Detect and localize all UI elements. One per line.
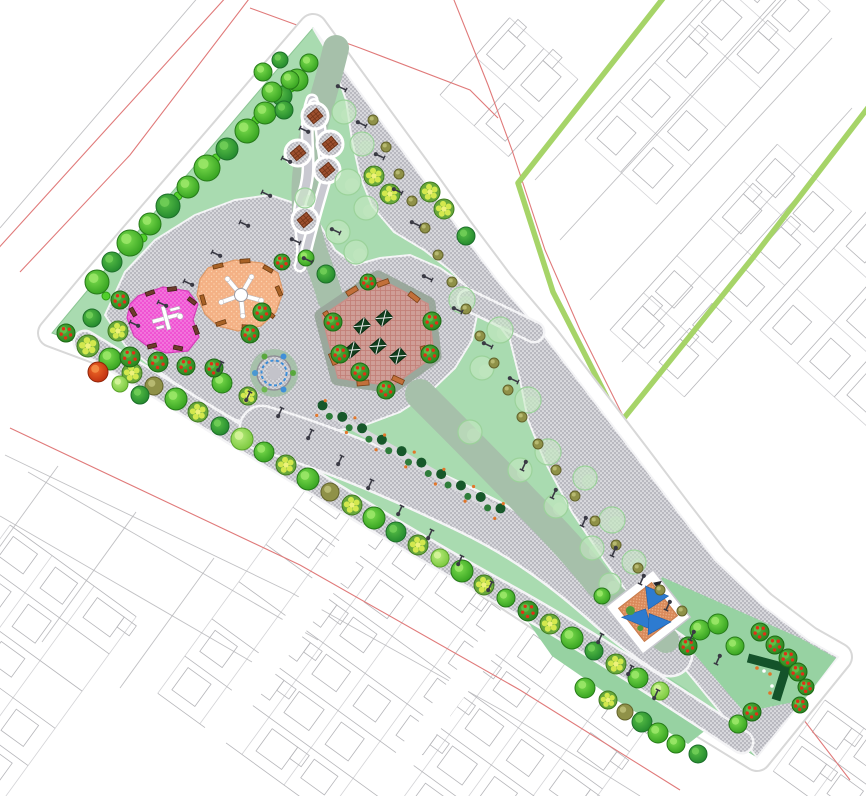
fruit-dot	[750, 715, 753, 718]
tree-o	[570, 491, 580, 501]
fruit-dot	[366, 285, 369, 288]
tree-h	[599, 507, 625, 533]
pergola-planting	[397, 446, 407, 456]
fruit-dot	[753, 631, 756, 634]
fruit-dot	[59, 332, 62, 335]
fruit-dot	[389, 390, 392, 393]
fruit-dot	[362, 281, 365, 284]
tree-f	[518, 601, 538, 621]
fruit-dot	[768, 644, 771, 647]
tree-s	[599, 691, 617, 709]
fruit-dot	[745, 711, 748, 714]
tree-c	[451, 560, 473, 582]
fruit-dot	[756, 626, 759, 629]
tree-o	[633, 563, 643, 573]
tree-d	[275, 101, 293, 119]
tree-h	[458, 420, 482, 444]
fruit-dot	[212, 371, 215, 374]
fruit-dot	[260, 315, 263, 318]
fruit-dot	[335, 317, 338, 320]
rose-dot	[345, 431, 348, 434]
fruit-dot	[798, 708, 801, 711]
fruit-dot	[69, 333, 72, 336]
fruit-dot	[791, 671, 794, 674]
tree-f	[324, 313, 342, 331]
fruit-dot	[207, 367, 210, 370]
fruit-dot	[791, 658, 794, 661]
rose-dot	[493, 517, 496, 520]
tree-h	[487, 317, 513, 343]
fruit-dot	[428, 315, 431, 318]
fruit-dot	[521, 611, 524, 614]
fruit-dot	[802, 682, 805, 685]
tree-o	[590, 516, 600, 526]
tree-f	[331, 345, 349, 363]
fruit-dot	[684, 640, 687, 643]
fruit-dot	[388, 385, 391, 388]
tree-o	[447, 277, 457, 287]
tree-s	[276, 455, 296, 475]
tree-o	[677, 606, 687, 616]
rose-dot	[315, 414, 318, 417]
tree-c	[363, 507, 385, 529]
fruit-dot	[333, 353, 336, 356]
tree-f	[421, 345, 439, 363]
fruit-dot	[794, 666, 797, 669]
tree-c	[194, 155, 220, 181]
fruit-dot	[686, 649, 689, 652]
tree-o	[368, 115, 378, 125]
tree-s	[408, 535, 428, 555]
tree-y	[231, 428, 253, 450]
tree-f	[148, 352, 168, 372]
fruit-dot	[123, 357, 126, 360]
fruit-dot	[364, 277, 367, 280]
hedge-dot	[768, 672, 772, 676]
bench	[167, 286, 176, 291]
fruit-dot	[430, 324, 433, 327]
rose-dot	[353, 416, 356, 419]
planting-tuft	[252, 370, 258, 376]
tree-f	[377, 381, 395, 399]
tree-c	[708, 614, 728, 634]
tree-c	[177, 176, 199, 198]
tree-c	[297, 468, 319, 490]
fruit-dot	[276, 261, 279, 264]
pergola-planting	[337, 412, 347, 422]
fruit-dot	[530, 605, 533, 608]
fruit-dot	[369, 277, 372, 280]
planting-tuft	[290, 370, 296, 376]
tree-f	[792, 697, 808, 713]
fruit-dot	[762, 627, 765, 630]
fruit-dot	[796, 675, 799, 678]
tree-h	[344, 240, 368, 264]
fruit-dot	[794, 704, 797, 707]
tree-o	[381, 142, 391, 152]
fruit-dot	[777, 640, 780, 643]
tree-o	[321, 483, 339, 501]
tree-o	[394, 169, 404, 179]
tree-f	[253, 303, 271, 321]
planting-tuft	[262, 354, 268, 360]
pergola-planting	[416, 458, 426, 468]
fruit-dot	[801, 700, 804, 703]
tree-h	[354, 196, 378, 220]
tree-c	[254, 63, 272, 81]
tree-c	[561, 627, 583, 649]
fruit-dot	[370, 282, 373, 285]
fruit-dot	[356, 366, 359, 369]
fruit-dot	[284, 262, 287, 265]
fruit-dot	[807, 682, 810, 685]
rose-dot	[324, 399, 327, 402]
fruit-dot	[342, 349, 345, 352]
fruit-dot	[188, 361, 191, 364]
tree-o	[433, 250, 443, 260]
fruit-dot	[179, 365, 182, 368]
fruit-dot	[802, 705, 805, 708]
fruit-dot	[331, 325, 334, 328]
fruit-dot	[748, 706, 751, 709]
rose-dot	[434, 482, 437, 485]
fruit-dot	[800, 686, 803, 689]
tree-o	[489, 358, 499, 368]
tree-f	[241, 325, 259, 343]
tree-c	[628, 668, 648, 688]
fruit-dot	[384, 393, 387, 396]
tree-c	[85, 270, 109, 294]
tree-c	[281, 71, 299, 89]
fruit-dot	[379, 389, 382, 392]
tree-c	[117, 230, 143, 256]
tree-d	[211, 417, 229, 435]
tree-h	[295, 188, 315, 208]
fruit-dot	[435, 321, 438, 324]
fruit-dot	[801, 672, 804, 675]
hedge-dot	[762, 669, 766, 673]
fruit-dot	[253, 334, 256, 337]
pergola-planting	[445, 481, 452, 488]
tree-s	[420, 182, 440, 202]
fruit-dot	[64, 336, 67, 339]
site-plan-canvas	[0, 0, 866, 796]
tree-c	[235, 119, 259, 143]
pergola-planting	[464, 493, 471, 500]
tree-c	[262, 82, 282, 102]
fruit-dot	[800, 667, 803, 670]
rose-dot	[502, 502, 505, 505]
fruit-dot	[804, 690, 807, 693]
tree-c	[594, 588, 610, 604]
fruit-dot	[523, 605, 526, 608]
fruit-dot	[283, 257, 286, 260]
fruit-dot	[763, 632, 766, 635]
tree-s	[364, 166, 384, 186]
pergola-planting	[326, 413, 333, 420]
rose-dot	[472, 485, 475, 488]
tree-s	[380, 184, 400, 204]
fruit-dot	[784, 652, 787, 655]
tree-s	[434, 199, 454, 219]
fruit-dot	[362, 367, 365, 370]
pergola-planting	[405, 459, 412, 466]
tree-f	[351, 363, 369, 381]
pergola-planting	[456, 481, 466, 491]
tree-c	[729, 715, 747, 733]
fruit-dot	[338, 357, 341, 360]
tree-c	[667, 735, 685, 753]
tree-h	[350, 132, 374, 156]
rose-dot	[442, 468, 445, 471]
fruit-dot	[153, 356, 156, 359]
tree-h	[335, 169, 361, 195]
fruit-dot	[278, 257, 281, 260]
water-feature	[250, 349, 298, 397]
fruit-dot	[778, 645, 781, 648]
tree-d	[272, 52, 288, 68]
fruit-dot	[382, 384, 385, 387]
fruit-dot	[423, 353, 426, 356]
fruit-dot	[755, 712, 758, 715]
fruit-dot	[681, 645, 684, 648]
fruit-dot	[252, 329, 255, 332]
fruit-dot	[116, 294, 119, 297]
fruit-dot	[123, 300, 126, 303]
tree-o	[475, 331, 485, 341]
tree-f	[423, 312, 441, 330]
fruit-dot	[280, 265, 283, 268]
tree-c	[300, 54, 318, 72]
tree-s	[606, 654, 626, 674]
hedge-dot	[755, 666, 759, 670]
fruit-dot	[132, 351, 135, 354]
rose-dot	[463, 500, 466, 503]
fruit-dot	[160, 356, 163, 359]
tree-d	[457, 227, 475, 245]
fruit-dot	[363, 372, 366, 375]
fruit-dot	[68, 328, 71, 331]
tree-o	[420, 223, 430, 233]
tree-o	[533, 439, 543, 449]
fruit-dot	[773, 648, 776, 651]
planting-tuft	[281, 354, 287, 360]
fruit-dot	[425, 320, 428, 323]
tree-h	[544, 494, 568, 518]
fruit-dot	[246, 328, 249, 331]
fruit-dot	[62, 327, 65, 330]
fruit-dot	[433, 354, 436, 357]
fruit-dot	[353, 371, 356, 374]
tree-c	[254, 102, 276, 124]
tree-o	[617, 704, 633, 720]
tree-y	[112, 376, 128, 392]
fruit-dot	[189, 366, 192, 369]
fruit-dot	[786, 661, 789, 664]
fruit-dot	[133, 357, 136, 360]
fruit-dot	[781, 657, 784, 660]
fruit-dot	[161, 362, 164, 365]
fruit-dot	[248, 337, 251, 340]
fruit-dot	[691, 646, 694, 649]
tree-f	[274, 254, 290, 270]
tree-c	[497, 589, 515, 607]
fruit-dot	[255, 311, 258, 314]
water-feature-center	[267, 366, 281, 380]
tree-h	[332, 100, 356, 124]
tree-o	[503, 385, 513, 395]
fruit-dot	[122, 295, 125, 298]
tree-o	[655, 585, 665, 595]
rose-dot	[383, 433, 386, 436]
fruit-dot	[771, 639, 774, 642]
tree-d	[131, 386, 149, 404]
rose-dot	[404, 465, 407, 468]
fruit-dot	[754, 707, 757, 710]
pergola-planting	[365, 436, 372, 443]
tree-f	[751, 623, 769, 641]
fruit-dot	[184, 369, 187, 372]
pergola-planting	[385, 447, 392, 454]
rose-dot	[374, 448, 377, 451]
pergola-planting	[346, 424, 353, 431]
tree-c	[575, 678, 595, 698]
tree-o	[551, 465, 561, 475]
fruit-dot	[258, 306, 261, 309]
fruit-dot	[526, 615, 529, 618]
fruit-dot	[118, 303, 121, 306]
tree-d	[156, 194, 180, 218]
tree-o	[517, 412, 527, 422]
tree-t	[102, 292, 110, 300]
tree-f	[743, 703, 761, 721]
fruit-dot	[432, 349, 435, 352]
rose-dot	[413, 451, 416, 454]
fruit-dot	[796, 700, 799, 703]
hedge-dot	[768, 691, 772, 695]
tree-c	[726, 637, 744, 655]
fruit-dot	[329, 316, 332, 319]
fruit-dot	[210, 362, 213, 365]
tree-d	[689, 745, 707, 763]
tree-f	[120, 347, 140, 367]
fruit-dot	[265, 312, 268, 315]
tree-s	[188, 402, 208, 422]
tree-s	[108, 321, 128, 341]
tree-c	[139, 213, 161, 235]
tree-d	[585, 642, 603, 660]
fruit-dot	[434, 316, 437, 319]
fruit-dot	[358, 375, 361, 378]
tree-y	[431, 549, 449, 567]
tree-f	[111, 291, 129, 309]
landscape-masterplan-drawing	[0, 0, 866, 796]
tree-d	[386, 522, 406, 542]
tree-c	[648, 723, 668, 743]
planting-tuft	[281, 386, 287, 392]
hedge-dot	[770, 684, 774, 688]
tree-h	[573, 466, 597, 490]
fruit-dot	[151, 362, 154, 365]
pergola-planting	[484, 504, 491, 511]
tree-f	[177, 357, 195, 375]
planting-tuft	[262, 386, 268, 392]
fruit-dot	[343, 354, 346, 357]
fruit-dot	[531, 611, 534, 614]
fruit-dot	[182, 360, 185, 363]
fruit-dot	[336, 322, 339, 325]
tree-d	[216, 138, 238, 160]
fruit-dot	[790, 653, 793, 656]
fruit-dot	[125, 351, 128, 354]
tree-h	[580, 536, 604, 560]
tree-o	[407, 196, 417, 206]
tree-f	[798, 679, 814, 695]
tree-r	[88, 362, 108, 382]
tree-d	[102, 252, 122, 272]
pergola-planting	[425, 470, 432, 477]
tree-c	[254, 442, 274, 462]
tree-f	[789, 663, 807, 681]
fruit-dot	[758, 635, 761, 638]
tree-f	[57, 324, 75, 342]
fruit-dot	[264, 307, 267, 310]
tree-f	[360, 274, 376, 290]
tree-s	[540, 614, 560, 634]
pergola-planting	[357, 423, 367, 433]
fruit-dot	[428, 357, 431, 360]
fruit-dot	[808, 687, 811, 690]
tree-c	[165, 388, 187, 410]
tree-s	[342, 495, 362, 515]
bench	[240, 259, 250, 264]
fruit-dot	[243, 333, 246, 336]
fruit-dot	[113, 299, 116, 302]
fruit-dot	[426, 348, 429, 351]
tree-h	[515, 387, 541, 413]
fruit-dot	[156, 366, 159, 369]
tree-h	[508, 458, 532, 482]
pergola-planting	[476, 492, 486, 502]
fruit-dot	[326, 321, 329, 324]
fruit-dot	[128, 361, 131, 364]
fruit-dot	[216, 363, 219, 366]
fruit-dot	[336, 348, 339, 351]
tree-d	[83, 309, 101, 327]
tree-s	[77, 335, 99, 357]
tree-d	[317, 265, 335, 283]
